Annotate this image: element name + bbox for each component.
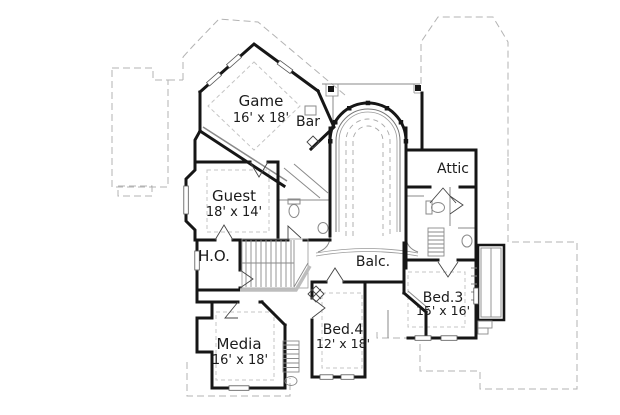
deck-step-2 [478,328,488,334]
guest-bath-walls [278,128,330,240]
deck-step-1 [478,321,492,328]
dashed-left-inner-rect [118,186,152,196]
bed3-window-1 [415,336,431,341]
attic-toilet-bowl [432,203,445,213]
room-dims-bed3: 15' x 16' [416,303,470,318]
dashed-left-connector [168,57,183,80]
room-label-game: Game [239,92,284,110]
room-label-ho: H.O. [198,247,230,265]
balcony-corner-brackets [326,84,422,96]
hall-fixture [285,377,297,386]
balcony-bed4-door [326,268,344,282]
attic-walls [406,93,476,268]
room-label-bar: Bar [296,114,320,130]
room-label-attic: Attic [437,161,469,177]
media-door [225,302,238,318]
attic-door [430,188,456,203]
room-label-media: Media [216,335,261,353]
bed3-side-window [474,288,479,304]
attic-sink [462,235,472,247]
guest-sink [318,223,328,234]
bed4-window-2 [341,375,354,380]
game-window-2 [227,54,242,68]
game-wall-parallel-line [203,127,287,181]
game-window-3 [277,60,293,73]
room-dims-guest: 18' x 14' [206,205,262,220]
guest-bay-window [184,186,189,214]
game-window-1 [207,72,222,86]
room-dims-media: 16' x 18' [212,353,268,368]
stair-treads [246,240,291,287]
arch-inner-rail-2 [339,112,397,232]
dashed-top-right-wing [421,17,508,158]
guest-toilet-bowl [289,205,299,218]
floor-plan-canvas: Game 16' x 18' Bar Guest 18' x 14' Attic… [0,0,620,415]
main-staircase [240,239,310,290]
arch-open-below-dash-2 [353,126,383,236]
dashed-left-wing [112,68,168,187]
floor-plan-drawing: Game 16' x 18' Bar Guest 18' x 14' Attic… [0,0,620,415]
room-label-balc: Balc. [356,254,390,270]
attic-bath-partitions [406,187,476,228]
room-label-guest: Guest [212,187,256,205]
bed4-window-1 [320,375,333,380]
attic-staircase [428,228,444,256]
guest-bath-door [288,226,301,240]
room-dims-bed4: 12' x 18' [316,336,370,351]
room-dims-game: 16' x 18' [233,111,289,126]
bed3-window-2 [441,336,457,341]
closet-shelf-lines [284,164,328,198]
linen-shaft [308,286,324,302]
arch-posts [328,101,408,144]
bed4-entry-door [312,298,325,318]
bed3-door [438,262,458,277]
media-window [229,386,249,391]
